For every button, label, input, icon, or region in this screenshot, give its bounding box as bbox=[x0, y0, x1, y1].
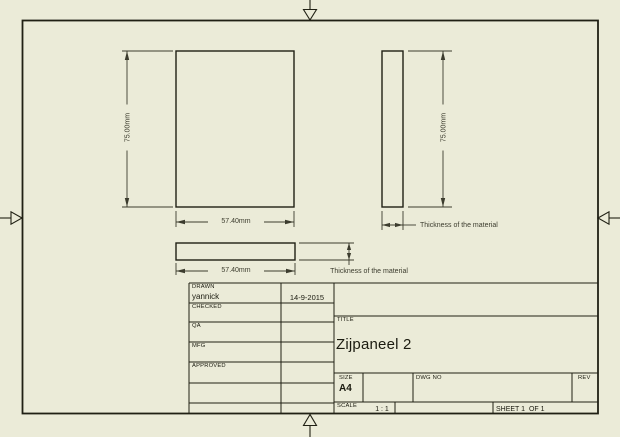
titleblock-title-label: TITLE bbox=[337, 318, 354, 324]
titleblock-scale-label: SCALE bbox=[337, 404, 357, 410]
titleblock-checked-label: CHECKED bbox=[192, 305, 222, 311]
sheet-border bbox=[23, 21, 599, 414]
front-width-dim-text: 57.40mm bbox=[208, 218, 264, 225]
titleblock-mfg-label: MFG bbox=[192, 344, 205, 350]
titleblock-drawn-date: 14-9-2015 bbox=[281, 294, 333, 302]
front-view-outline bbox=[176, 51, 294, 207]
centering-mark-bottom-icon bbox=[304, 415, 317, 437]
titleblock-dwgno-label: DWG NO bbox=[416, 376, 442, 382]
titleblock-rev-label: REV bbox=[578, 376, 591, 382]
titleblock-title-value: Zijpaneel 2 bbox=[336, 337, 412, 352]
bottom-thickness-dimension bbox=[299, 243, 354, 265]
titleblock-approved-label: APPROVED bbox=[192, 364, 226, 370]
bottom-width-dim-text: 57.40mm bbox=[208, 267, 264, 274]
centering-mark-top-icon bbox=[304, 0, 317, 20]
titleblock-scale-value: 1 : 1 bbox=[364, 406, 400, 413]
bottom-view-outline bbox=[176, 243, 295, 260]
side-height-dim-text: 75.00mm bbox=[441, 105, 448, 151]
titleblock-sheet-label: SHEET 1 OF 1 bbox=[496, 406, 545, 413]
bottom-thickness-note: Thickness of the material bbox=[318, 268, 420, 275]
side-thickness-dimension bbox=[382, 211, 416, 230]
side-view-outline bbox=[382, 51, 403, 207]
drawing-linework bbox=[0, 0, 620, 437]
titleblock-size-value: A4 bbox=[339, 384, 352, 394]
centering-mark-left-icon bbox=[0, 212, 22, 224]
centering-mark-right-icon bbox=[598, 212, 620, 224]
drawing-sheet: 75.00mm 57.40mm 75.00mm Thickness of the… bbox=[0, 0, 620, 437]
side-thickness-note: Thickness of the material bbox=[419, 222, 499, 229]
titleblock-size-label: SIZE bbox=[339, 376, 353, 382]
titleblock-drawn-label: DRAWN bbox=[192, 285, 215, 291]
titleblock-qa-label: QA bbox=[192, 324, 201, 330]
front-height-dim-text: 75.00mm bbox=[125, 105, 132, 151]
titleblock-drawn-name: yannick bbox=[192, 293, 219, 301]
